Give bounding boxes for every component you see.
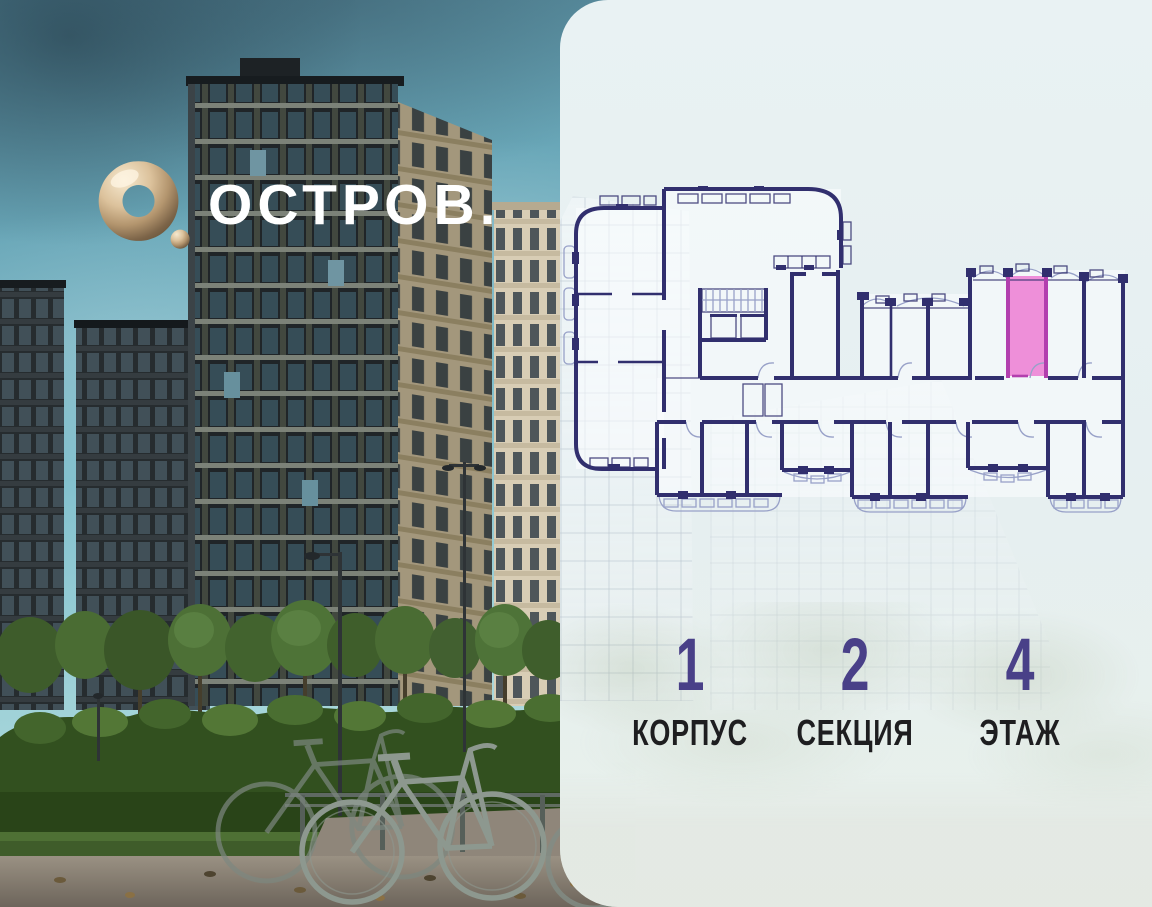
logo-ring-icon <box>90 156 194 260</box>
unit-selector-panel: 1 КОРПУС 2 СЕКЦИЯ 4 ЭТАЖ <box>560 0 1152 907</box>
stat-section-value: 2 <box>799 628 911 702</box>
stat-floor-value: 4 <box>964 628 1076 702</box>
stat-building: 1 КОРПУС <box>610 628 770 754</box>
stat-building-label: КОРПУС <box>630 712 750 754</box>
stat-floor: 4 ЭТАЖ <box>940 628 1100 754</box>
page: { "logo": { "ring": "О", "dot": ".", "te… <box>0 0 1152 907</box>
unit-location-stats: 1 КОРПУС 2 СЕКЦИЯ 4 ЭТАЖ <box>560 628 1152 754</box>
stat-section: 2 СЕКЦИЯ <box>775 628 935 754</box>
logo-dot-icon <box>171 230 190 249</box>
highlighted-unit[interactable] <box>1010 276 1044 376</box>
stat-section-label: СЕКЦИЯ <box>795 712 915 754</box>
logo-text: ОСТРОВ. <box>208 172 501 238</box>
stat-floor-label: ЭТАЖ <box>960 712 1080 754</box>
logo: ОСТРОВ. <box>90 156 501 260</box>
floorplan[interactable] <box>560 182 1152 527</box>
stat-building-value: 1 <box>634 628 746 702</box>
